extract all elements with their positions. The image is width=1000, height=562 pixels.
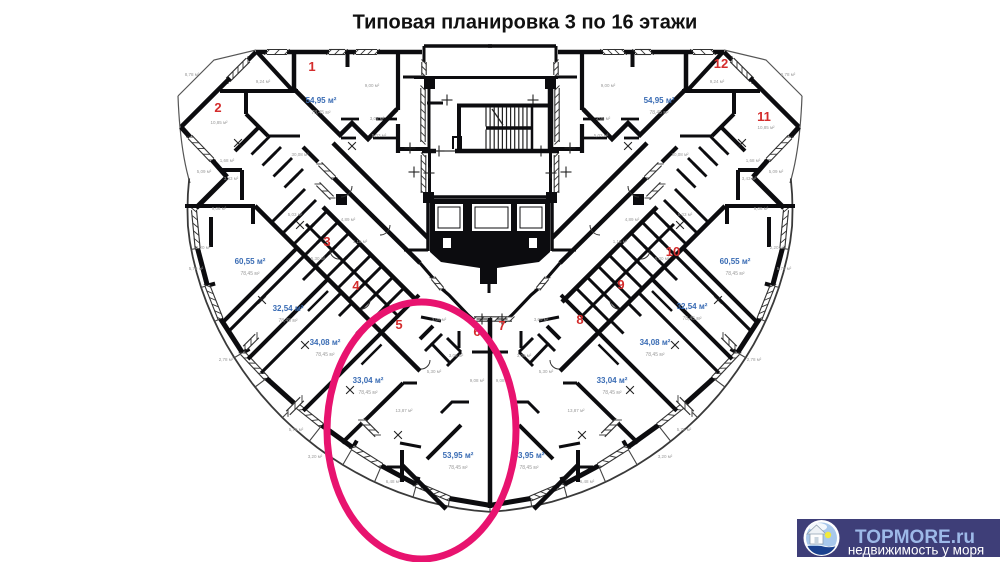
svg-text:2,78 м²: 2,78 м² — [747, 357, 762, 362]
svg-text:2,78 м²: 2,78 м² — [219, 357, 234, 362]
svg-text:78,45 м²: 78,45 м² — [315, 352, 334, 358]
svg-text:7: 7 — [498, 318, 505, 333]
svg-text:78,45 м²: 78,45 м² — [602, 390, 621, 396]
svg-text:5,30 м²: 5,30 м² — [539, 369, 554, 374]
svg-text:33,04 м²: 33,04 м² — [353, 376, 384, 385]
svg-text:9,08 м²: 9,08 м² — [470, 378, 485, 383]
svg-text:3,09 м²: 3,09 м² — [517, 353, 532, 358]
svg-text:1,15 м²: 1,15 м² — [613, 239, 628, 244]
svg-text:34,08 м²: 34,08 м² — [310, 338, 341, 347]
svg-text:5,03 м²: 5,03 м² — [372, 133, 387, 138]
svg-text:5: 5 — [395, 317, 402, 332]
svg-text:78,45 м²: 78,45 м² — [725, 271, 744, 277]
svg-text:5,03 м²: 5,03 м² — [288, 212, 303, 217]
svg-text:3,09 м²: 3,09 м² — [432, 317, 447, 322]
svg-text:9,24 м²: 9,24 м² — [710, 79, 725, 84]
svg-text:2,20 м²: 2,20 м² — [770, 245, 785, 250]
svg-text:2,20 м²: 2,20 м² — [196, 245, 211, 250]
svg-text:54,95 м²: 54,95 м² — [306, 96, 337, 105]
svg-text:5,30 м²: 5,30 м² — [655, 256, 670, 261]
svg-text:10,85 м²: 10,85 м² — [210, 120, 228, 125]
svg-text:78,45 м²: 78,45 м² — [278, 318, 297, 324]
svg-text:33,04 м²: 33,04 м² — [597, 376, 628, 385]
svg-text:3,09 м²: 3,09 м² — [449, 353, 464, 358]
svg-text:12: 12 — [714, 56, 728, 71]
svg-text:4,89 м²: 4,89 м² — [625, 217, 640, 222]
svg-text:Типовая планировка 3 по 16 эта: Типовая планировка 3 по 16 этажи — [353, 12, 698, 34]
svg-text:9,00 м²: 9,00 м² — [365, 83, 380, 88]
svg-text:78,45 м²: 78,45 м² — [358, 390, 377, 396]
svg-text:9,24 м²: 9,24 м² — [256, 79, 271, 84]
svg-text:недвижимость у моря: недвижимость у моря — [848, 543, 984, 558]
svg-text:13,87 м²: 13,87 м² — [395, 408, 413, 413]
svg-text:9,06 м²: 9,06 м² — [212, 206, 227, 211]
svg-text:9,06 м²: 9,06 м² — [754, 206, 769, 211]
svg-text:2: 2 — [214, 100, 221, 115]
svg-text:3,09 м²: 3,09 м² — [534, 317, 549, 322]
svg-text:1,68 м²: 1,68 м² — [220, 158, 235, 163]
svg-text:78,45 м²: 78,45 м² — [682, 316, 701, 322]
svg-text:78,45 м²: 78,45 м² — [519, 465, 538, 471]
svg-text:53,95 м²: 53,95 м² — [443, 451, 474, 460]
svg-text:3,05 м²: 3,05 м² — [370, 116, 385, 121]
svg-text:4: 4 — [352, 278, 360, 293]
svg-text:13,87 м²: 13,87 м² — [567, 408, 585, 413]
svg-text:10,85 м²: 10,85 м² — [757, 125, 775, 130]
svg-text:1: 1 — [308, 59, 315, 74]
svg-text:8: 8 — [576, 312, 583, 327]
svg-text:11: 11 — [757, 109, 771, 124]
svg-text:1,15 м²: 1,15 м² — [353, 239, 368, 244]
svg-text:54,95 м²: 54,95 м² — [644, 96, 675, 105]
svg-text:3,05 м²: 3,05 м² — [596, 116, 611, 121]
svg-text:5,76 м²: 5,76 м² — [777, 266, 792, 271]
svg-text:5,03 м²: 5,03 м² — [678, 212, 693, 217]
svg-text:5,03 м²: 5,03 м² — [594, 133, 609, 138]
svg-text:60,55 м²: 60,55 м² — [235, 257, 266, 266]
svg-text:3,43 м²: 3,43 м² — [742, 176, 757, 181]
svg-text:5,30 м²: 5,30 м² — [427, 369, 442, 374]
svg-text:32,54 м²: 32,54 м² — [273, 304, 304, 313]
svg-text:3,20 м²: 3,20 м² — [658, 454, 673, 459]
svg-text:78,45 м²: 78,45 м² — [649, 110, 668, 116]
svg-text:8,78 м²: 8,78 м² — [781, 72, 796, 77]
svg-text:3,43 м²: 3,43 м² — [224, 176, 239, 181]
svg-text:5,09 м²: 5,09 м² — [769, 169, 784, 174]
svg-text:8,78 м²: 8,78 м² — [185, 72, 200, 77]
svg-text:5,76 м²: 5,76 м² — [677, 427, 692, 432]
svg-text:60,55 м²: 60,55 м² — [720, 257, 751, 266]
svg-text:30,08 м²: 30,08 м² — [291, 152, 309, 157]
svg-text:5,30 м²: 5,30 м² — [311, 256, 326, 261]
svg-text:78,45 м²: 78,45 м² — [448, 465, 467, 471]
svg-text:53,95 м²: 53,95 м² — [514, 451, 545, 460]
svg-text:32,54 м²: 32,54 м² — [677, 302, 708, 311]
svg-text:6,48 м²: 6,48 м² — [386, 479, 401, 484]
svg-text:9,00 м²: 9,00 м² — [601, 83, 616, 88]
svg-text:78,45 м²: 78,45 м² — [311, 110, 330, 116]
svg-text:3,20 м²: 3,20 м² — [308, 454, 323, 459]
svg-text:30,08 м²: 30,08 м² — [671, 152, 689, 157]
svg-text:34,08 м²: 34,08 м² — [640, 338, 671, 347]
svg-text:5,76 м²: 5,76 м² — [189, 266, 204, 271]
svg-text:1,68 м²: 1,68 м² — [746, 158, 761, 163]
svg-text:5,09 м²: 5,09 м² — [197, 169, 212, 174]
svg-text:5,76 м²: 5,76 м² — [289, 427, 304, 432]
svg-text:78,45 м²: 78,45 м² — [645, 352, 664, 358]
svg-text:3: 3 — [323, 234, 330, 249]
svg-text:9: 9 — [617, 277, 624, 292]
svg-text:78,45 м²: 78,45 м² — [240, 271, 259, 277]
svg-text:4,89 м²: 4,89 м² — [341, 217, 356, 222]
svg-text:6,48 м²: 6,48 м² — [580, 479, 595, 484]
